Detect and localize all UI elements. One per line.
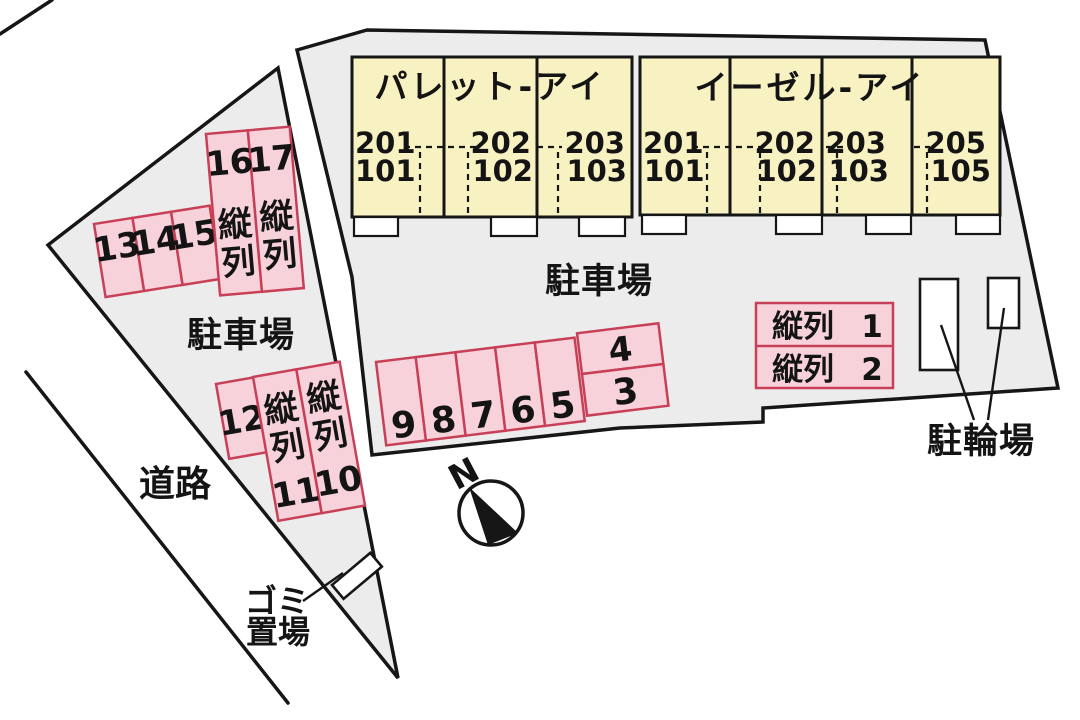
entrance-porch [956,215,1000,234]
entrance-porch [866,215,911,234]
corner-boundary-line [0,0,52,34]
unit-number-lower: 101 [644,154,705,188]
tandem-spaces-16-17: 16 17 縦 列 縦 列 [203,126,306,295]
tandem-label-char: 列 [220,241,257,284]
space-number: 5 [548,384,578,428]
space-number: 3 [611,370,641,414]
unit-number-lower: 103 [828,154,889,188]
space-number: 7 [468,394,498,438]
tandem-row-label: 縦列 [772,352,834,388]
tandem-table: 縦列 1 縦列 2 [756,303,893,388]
space-number: 9 [389,404,419,448]
site-plan-canvas: パレット-アイ 201 101 202 102 203 103 イーゼル-アイ … [0,0,1080,720]
unit-number-lower: 102 [472,154,533,188]
tandem-row-number: 1 [861,309,883,345]
bicycle-parking-label: 駐輪場 [927,421,1035,462]
road-label: 道路 [139,464,212,505]
entrance-porch [642,215,686,234]
space-number: 4 [606,329,634,372]
compass: N [442,450,523,545]
site-plan: パレット-アイ 201 101 202 102 203 103 イーゼル-アイ … [0,0,1080,720]
building-name: パレット-アイ [374,67,605,106]
tandem-row-label: 縦列 [772,309,834,345]
space-number: 8 [429,399,459,443]
tandem-row-number: 2 [861,352,883,388]
garbage-label-line2: 置場 [246,613,310,651]
building-name: イーゼル-アイ [694,68,925,107]
unit-number-lower: 102 [756,154,817,188]
unit-number-lower: 101 [355,154,416,188]
unit-number-lower: 103 [566,154,627,188]
space-number: 6 [508,389,538,433]
tandem-label-char: 縦 [216,203,253,246]
entrance-porch [776,215,822,234]
space-number: 17 [246,137,297,181]
bicycle-rack-small [988,278,1019,328]
entrance-porch [491,217,537,236]
building-palette-ai: パレット-アイ 201 101 202 102 203 103 [352,57,632,236]
parking-area-label-main: 駐車場 [545,262,653,302]
entrance-porch [354,217,398,236]
tandem-label-char: 縦 [258,196,295,239]
parking-area-label-left: 駐車場 [187,316,295,356]
building-easel-ai: イーゼル-アイ 201 101 202 102 203 103 205 105 [640,57,1000,234]
space-number: 10 [312,458,366,506]
entrance-porch [579,217,625,236]
tandem-label-char: 列 [267,424,307,469]
unit-number-lower: 105 [930,154,991,188]
tandem-label-char: 列 [310,413,350,458]
tandem-label-char: 列 [261,234,298,277]
